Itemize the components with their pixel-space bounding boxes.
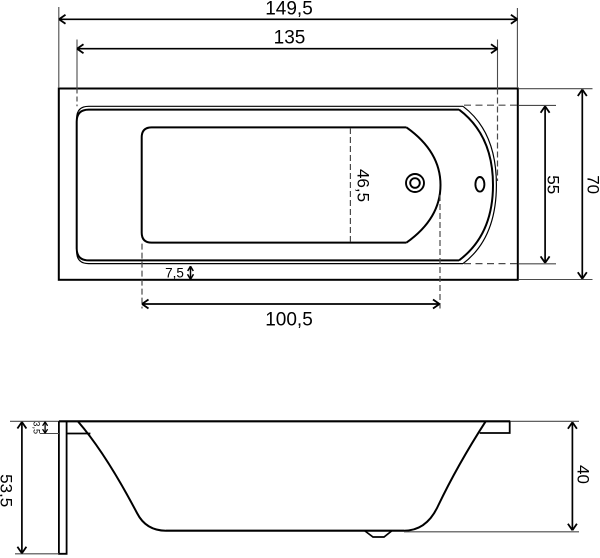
svg-text:40: 40 <box>574 465 593 484</box>
svg-text:46,5: 46,5 <box>354 169 373 202</box>
svg-text:135: 135 <box>274 28 306 49</box>
svg-text:149,5: 149,5 <box>265 0 313 20</box>
svg-text:7,5: 7,5 <box>165 265 184 280</box>
svg-text:55: 55 <box>544 175 563 194</box>
svg-text:53,5: 53,5 <box>0 474 16 507</box>
svg-text:3,5: 3,5 <box>32 421 42 434</box>
svg-text:70: 70 <box>584 175 600 194</box>
svg-text:100,5: 100,5 <box>265 310 313 331</box>
